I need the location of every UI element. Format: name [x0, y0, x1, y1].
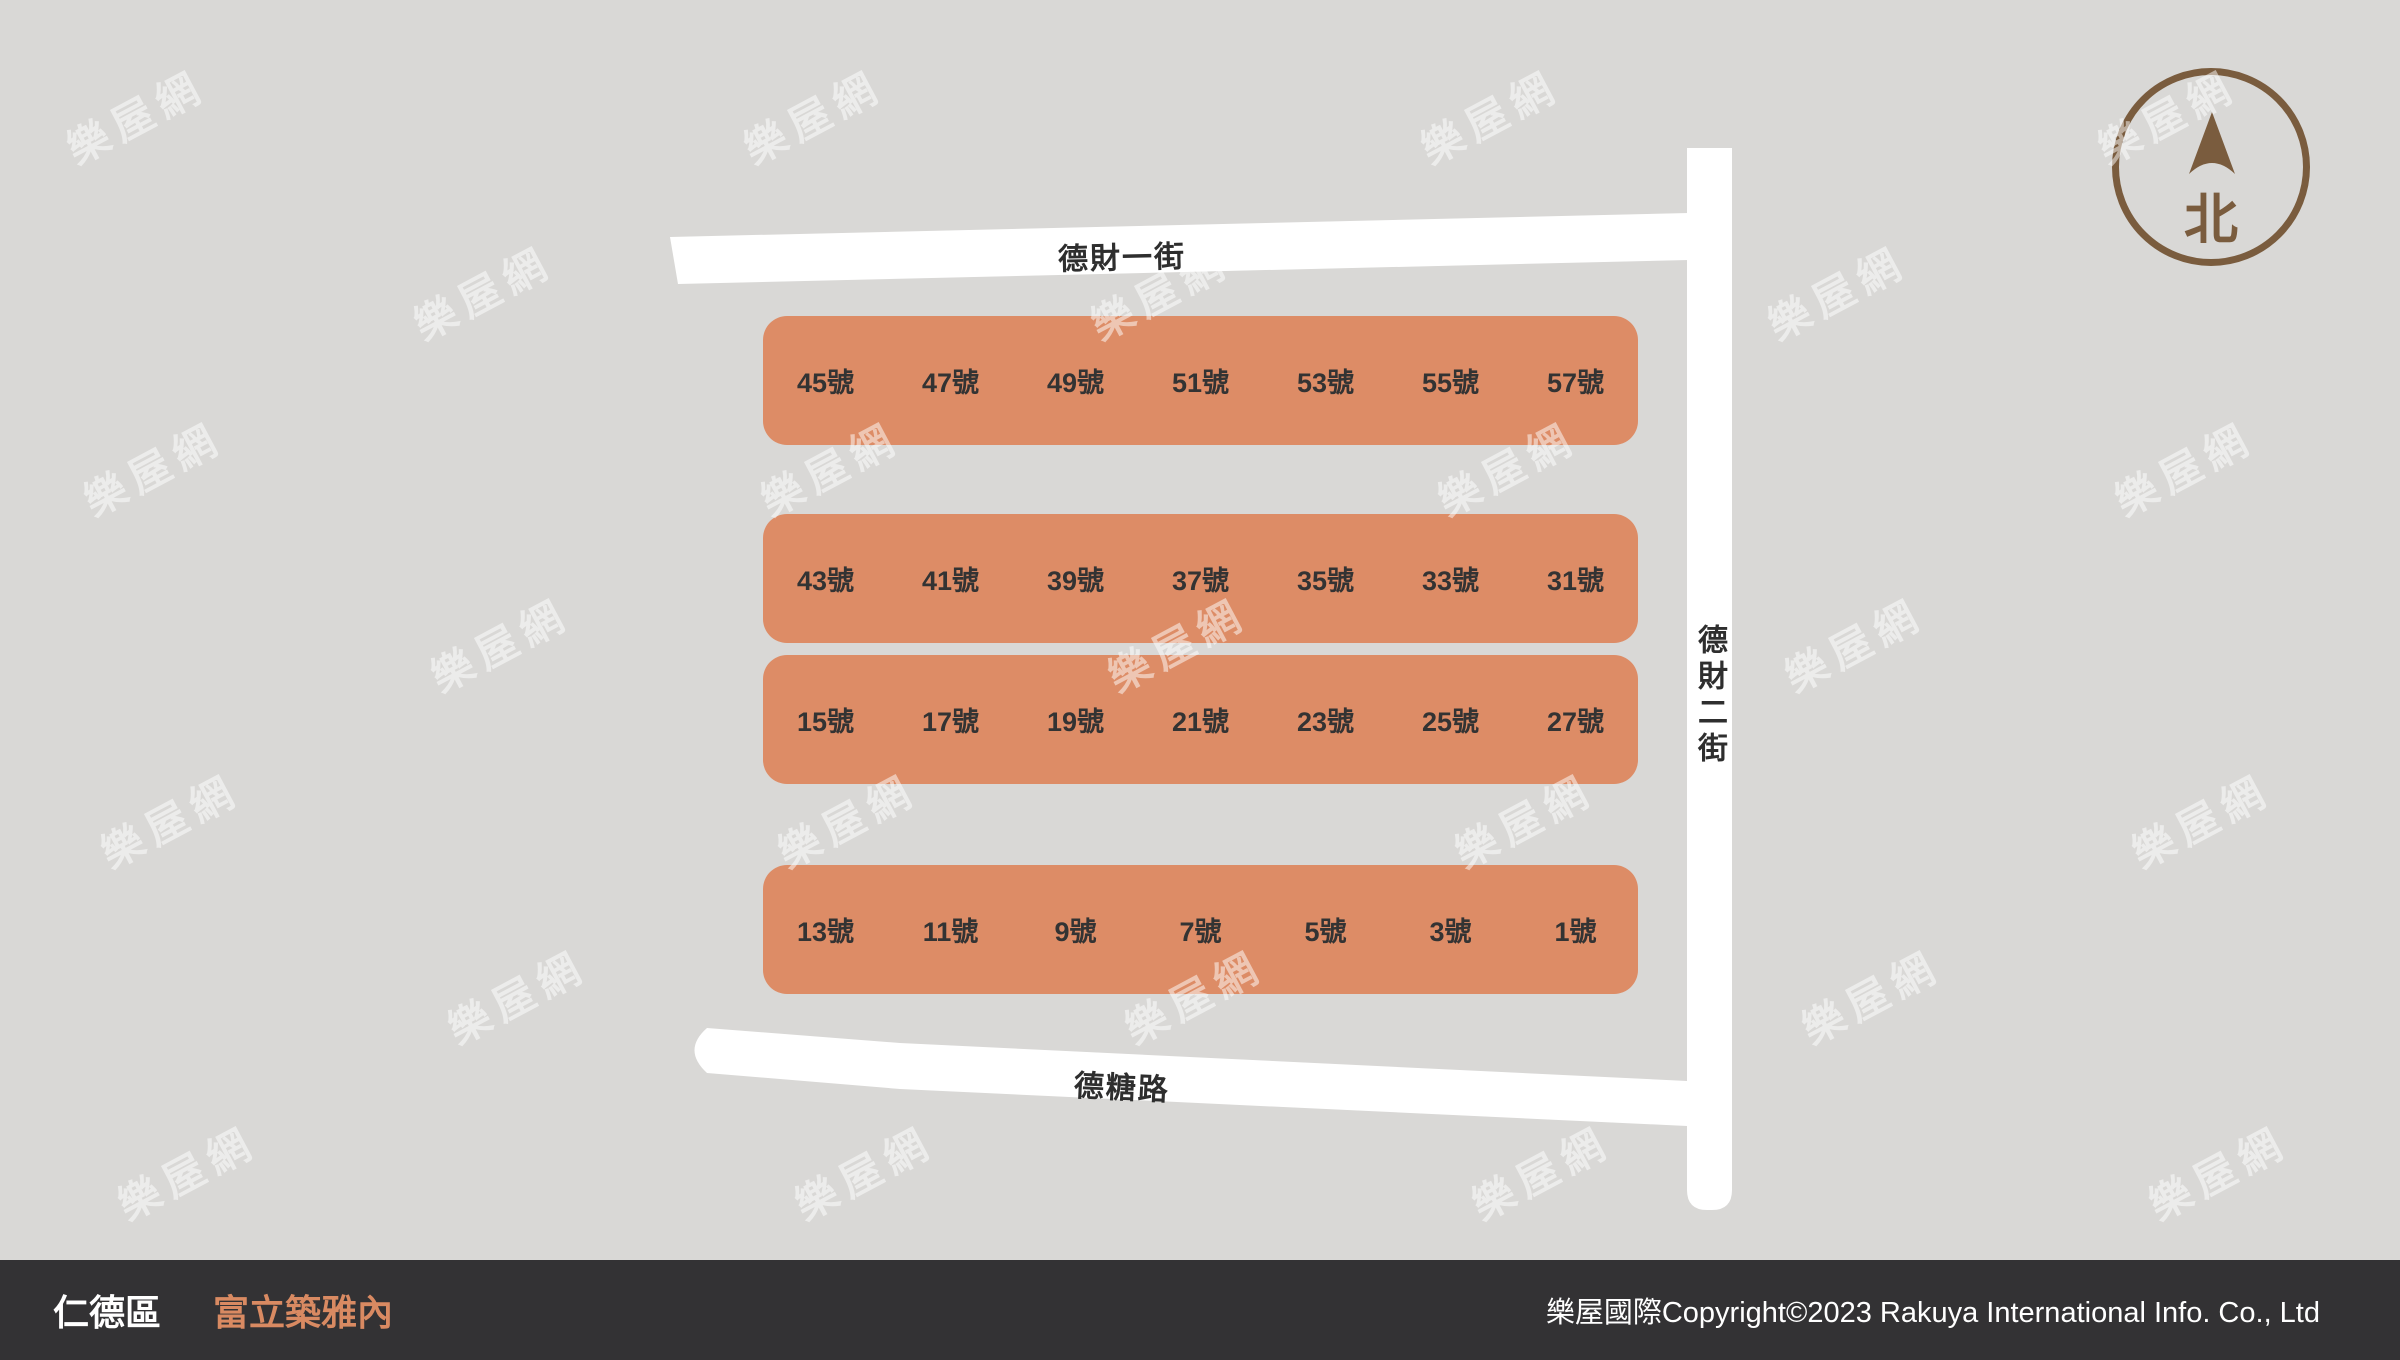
house-number: 25號 — [1388, 700, 1513, 739]
building-row-43-31: 43號41號39號37號35號33號31號 — [763, 514, 1638, 643]
building-row-15-27: 15號17號19號21號23號25號27號 — [763, 655, 1638, 784]
house-number: 15號 — [763, 700, 888, 739]
district-label: 仁德區 — [53, 1284, 161, 1336]
house-number: 57號 — [1513, 361, 1638, 400]
house-number: 19號 — [1013, 700, 1138, 739]
road-detang-road — [695, 1028, 1688, 1126]
house-number: 13號 — [763, 910, 888, 949]
road-label-detang: 德糖路 — [1073, 1061, 1171, 1109]
compass-north-label: 北 — [2119, 193, 2303, 247]
house-number: 37號 — [1138, 559, 1263, 598]
copyright-text: 樂屋國際Copyright©2023 Rakuya International … — [1546, 1289, 2320, 1331]
building-row-45-57: 45號47號49號51號53號55號57號 — [763, 316, 1638, 445]
house-number: 3號 — [1388, 910, 1513, 949]
site-map: 德財一街 德財二街 德糖路 45號47號49號51號53號55號57號 43號4… — [0, 0, 2400, 1360]
house-number: 45號 — [763, 361, 888, 400]
house-number: 1號 — [1513, 910, 1638, 949]
house-number: 7號 — [1138, 910, 1263, 949]
building-row-13-1: 13號11號9號7號5號3號1號 — [763, 865, 1638, 994]
project-name-label: 富立築雅內 — [213, 1284, 393, 1336]
house-number: 33號 — [1388, 559, 1513, 598]
house-number: 47號 — [888, 361, 1013, 400]
road-decai-1st-street — [670, 212, 1732, 284]
house-number: 27號 — [1513, 700, 1638, 739]
house-number: 39號 — [1013, 559, 1138, 598]
house-number: 17號 — [888, 700, 1013, 739]
house-number: 49號 — [1013, 361, 1138, 400]
house-number: 5號 — [1263, 910, 1388, 949]
house-number: 55號 — [1388, 361, 1513, 400]
house-number: 31號 — [1513, 559, 1638, 598]
footer-bar: 仁德區 富立築雅內 樂屋國際Copyright©2023 Rakuya Inte… — [0, 1260, 2400, 1360]
north-arrow-icon — [2189, 111, 2235, 175]
house-number: 35號 — [1263, 559, 1388, 598]
house-number: 53號 — [1263, 361, 1388, 400]
house-number: 11號 — [888, 910, 1013, 949]
house-number: 21號 — [1138, 700, 1263, 739]
house-number: 43號 — [763, 559, 888, 598]
house-number: 9號 — [1013, 910, 1138, 949]
house-number: 51號 — [1138, 361, 1263, 400]
compass: 北 — [2112, 68, 2310, 266]
road-label-decai-2nd: 德財二街 — [1687, 624, 1731, 768]
house-number: 23號 — [1263, 700, 1388, 739]
house-number: 41號 — [888, 559, 1013, 598]
road-label-decai-1st: 德財一街 — [1058, 232, 1187, 279]
